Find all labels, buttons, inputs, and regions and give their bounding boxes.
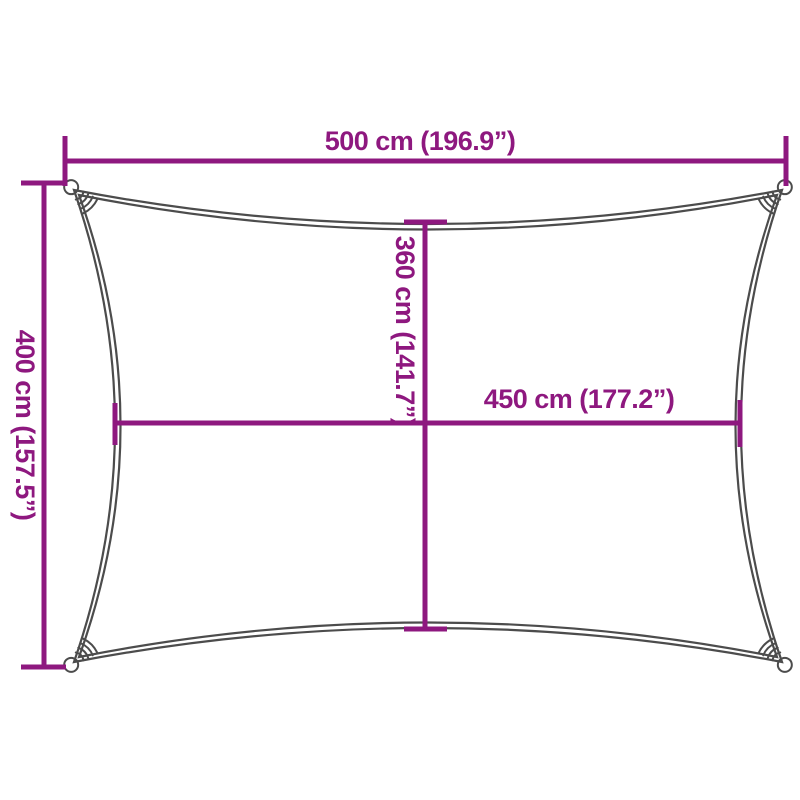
width-label: 500 cm (196.9”) [325,126,516,156]
sail-inner-edge [79,195,777,657]
inner-height-label: 360 cm (141.7”) [390,236,420,427]
sail-outer-edge [74,190,782,662]
height-label: 400 cm (157.5”) [10,330,40,521]
dimension-labels: 500 cm (196.9”) 400 cm (157.5”) 360 cm (… [10,126,674,520]
product-dimension-image: 500 cm (196.9”) 400 cm (157.5”) 360 cm (… [0,0,800,800]
corner-grommets [59,175,797,677]
sail-outline [74,190,782,662]
inner-width-label: 450 cm (177.2”) [484,384,675,414]
shade-sail-diagram: 500 cm (196.9”) 400 cm (157.5”) 360 cm (… [0,0,800,800]
